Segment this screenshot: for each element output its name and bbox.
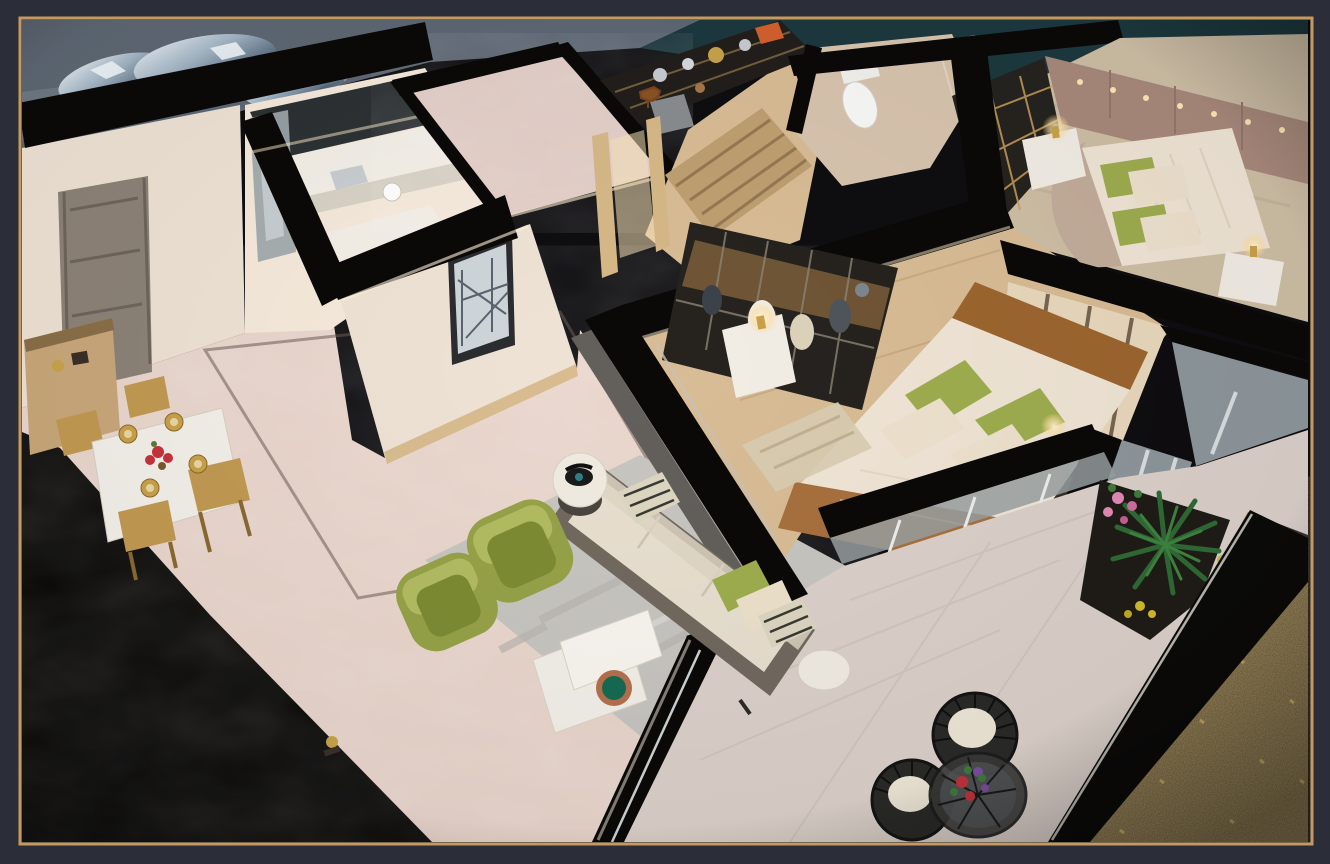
screenshot bbox=[0, 0, 1330, 864]
photo-vignette bbox=[22, 20, 1310, 842]
model-photo bbox=[0, 0, 1330, 864]
photo-area bbox=[18, 20, 1310, 842]
